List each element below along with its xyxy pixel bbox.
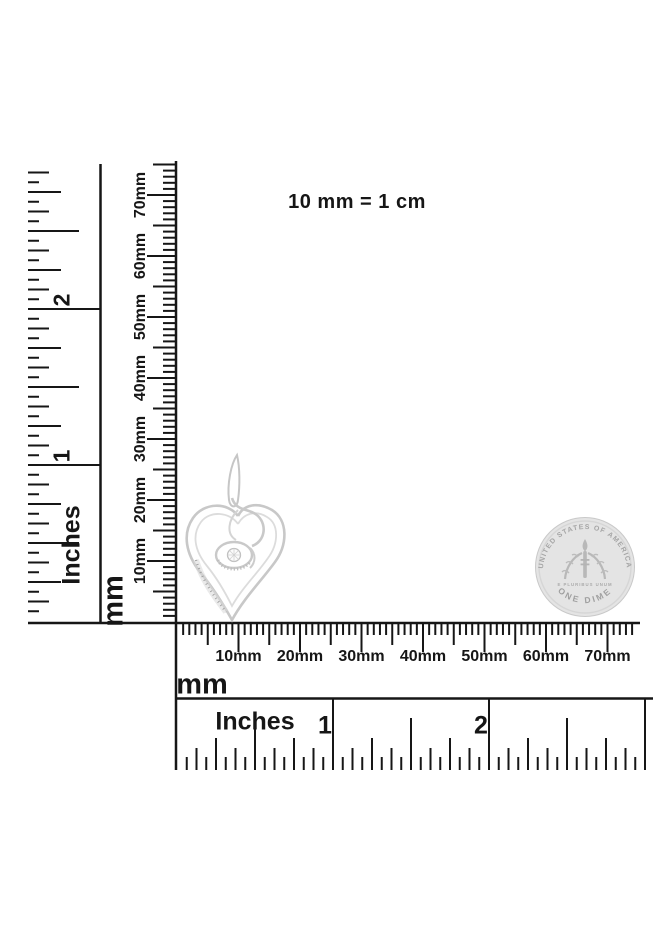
ruler-tick-marks bbox=[0, 0, 653, 940]
horizontal-mm-label-30mm: 30mm bbox=[338, 649, 384, 665]
horizontal-mm-label-40mm: 40mm bbox=[400, 649, 446, 665]
horizontal-mm-unit-label: mm bbox=[176, 671, 228, 700]
horizontal-mm-label-10mm: 10mm bbox=[215, 649, 261, 665]
horizontal-inch-number-2: 2 bbox=[474, 714, 488, 739]
dime-coin-image: UNITED STATES OF AMERICA ONE DIME E PLUR… bbox=[533, 515, 637, 619]
horizontal-inches-unit-label: Inches bbox=[215, 710, 294, 735]
vertical-inch-number-1: 1 bbox=[51, 450, 74, 463]
pendant-bail bbox=[228, 455, 239, 506]
coin-torch-band-upper bbox=[581, 559, 590, 561]
vertical-mm-label-70mm: 70mm bbox=[133, 172, 149, 218]
coin-motto: E PLURIBUS UNUM bbox=[557, 582, 612, 587]
vertical-mm-label-10mm: 10mm bbox=[133, 538, 149, 584]
coin-torch-band-lower bbox=[581, 564, 590, 566]
vertical-mm-label-40mm: 40mm bbox=[133, 355, 149, 401]
vertical-mm-label-30mm: 30mm bbox=[133, 416, 149, 462]
vertical-inches-unit-label: Inches bbox=[60, 505, 85, 584]
horizontal-mm-label-70mm: 70mm bbox=[584, 649, 630, 665]
heart-pendant-image bbox=[180, 450, 294, 628]
horizontal-mm-label-60mm: 60mm bbox=[523, 649, 569, 665]
vertical-mm-unit-label: mm bbox=[100, 575, 129, 627]
vertical-inch-number-2: 2 bbox=[51, 294, 74, 307]
vertical-mm-label-20mm: 20mm bbox=[133, 477, 149, 523]
horizontal-mm-label-20mm: 20mm bbox=[277, 649, 323, 665]
vertical-mm-label-50mm: 50mm bbox=[133, 294, 149, 340]
horizontal-mm-label-50mm: 50mm bbox=[461, 649, 507, 665]
vertical-mm-label-60mm: 60mm bbox=[133, 233, 149, 279]
horizontal-inch-number-1: 1 bbox=[318, 714, 332, 739]
size-reference-figure: 10 mm = 1 cm Inches mm mm Inches 10mm20m… bbox=[0, 0, 653, 940]
